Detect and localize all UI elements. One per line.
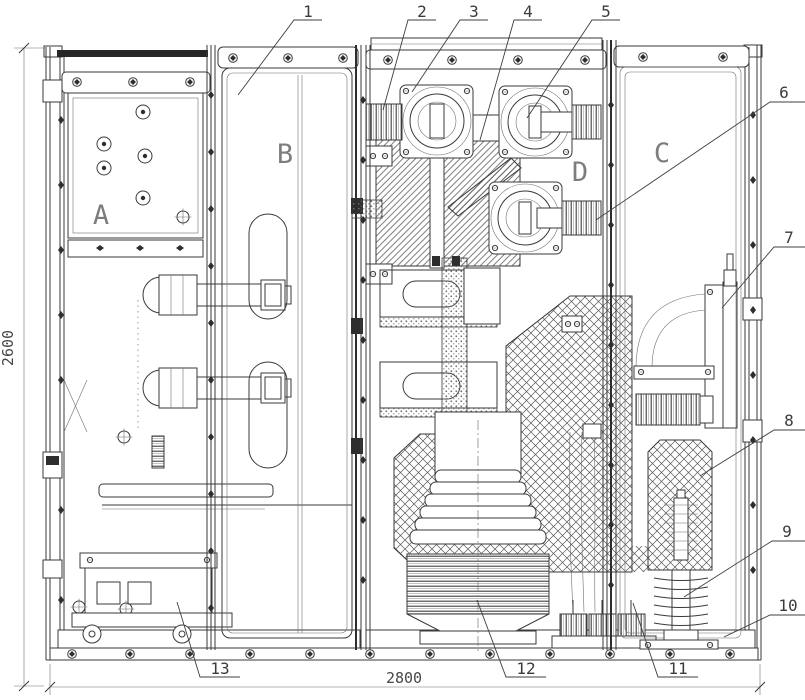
callout-8-number: 8	[784, 411, 794, 430]
dimension-height: 2600	[0, 43, 44, 691]
callout-2-number: 2	[417, 2, 427, 21]
panel-knob	[97, 137, 111, 151]
breaker-pole-upper	[143, 275, 291, 315]
callout-1-number: 1	[303, 2, 313, 21]
panel-knob	[138, 149, 152, 163]
compartment-b: B	[222, 68, 363, 638]
left-wall	[43, 46, 64, 660]
callout-11-number: 11	[668, 659, 687, 678]
switchgear-cross-section-drawing: 2600 2800	[0, 0, 805, 700]
callout-6: 6	[596, 83, 805, 220]
epoxy-column	[442, 258, 467, 413]
callout-9-number: 9	[782, 522, 792, 541]
panel-knob	[97, 161, 111, 175]
dimension-width-label: 2800	[386, 669, 422, 687]
panel-knob	[136, 105, 150, 119]
control-box	[85, 568, 212, 613]
dimension-height-label: 2600	[0, 330, 17, 366]
compartment-d-label: D	[572, 157, 588, 188]
compartment-c-label: C	[654, 138, 670, 169]
truck-wheel	[83, 625, 101, 643]
callout-12-number: 12	[516, 659, 535, 678]
bushing-middle	[489, 182, 601, 254]
callout-5-number: 5	[601, 2, 611, 21]
callout-4-number: 4	[523, 2, 533, 21]
roof-plates	[57, 38, 749, 93]
callout-7: 7	[722, 228, 805, 308]
dimension-width: 2800	[45, 664, 765, 695]
compartment-a-label: A	[93, 200, 109, 231]
callout-10-number: 10	[778, 596, 797, 615]
panel-knob	[136, 191, 150, 205]
panel-screw-icon	[175, 209, 192, 226]
spout-arm-lower	[380, 362, 497, 417]
cable-elbow	[634, 254, 737, 428]
arrester-base	[640, 640, 718, 649]
roof-plate-c	[614, 46, 749, 67]
bellows-seal	[366, 104, 402, 140]
bellows-seal	[636, 394, 700, 425]
callout-13-number: 13	[210, 659, 229, 678]
drawing-canvas: 2600 2800	[0, 0, 805, 700]
mechanism-spring	[152, 436, 164, 468]
roof-plate-a	[57, 50, 208, 57]
surge-arrester	[640, 440, 718, 649]
breaker-pole-lower	[143, 368, 291, 408]
withdrawal-rails	[99, 484, 352, 509]
bellows-seal	[562, 201, 601, 235]
callout-7-number: 7	[784, 228, 794, 247]
callout-3-number: 3	[469, 2, 479, 21]
compartment-a: A	[64, 93, 352, 643]
bellows-seal	[572, 105, 601, 139]
callout-6-number: 6	[779, 83, 789, 102]
compartment-b-label: B	[277, 139, 293, 170]
